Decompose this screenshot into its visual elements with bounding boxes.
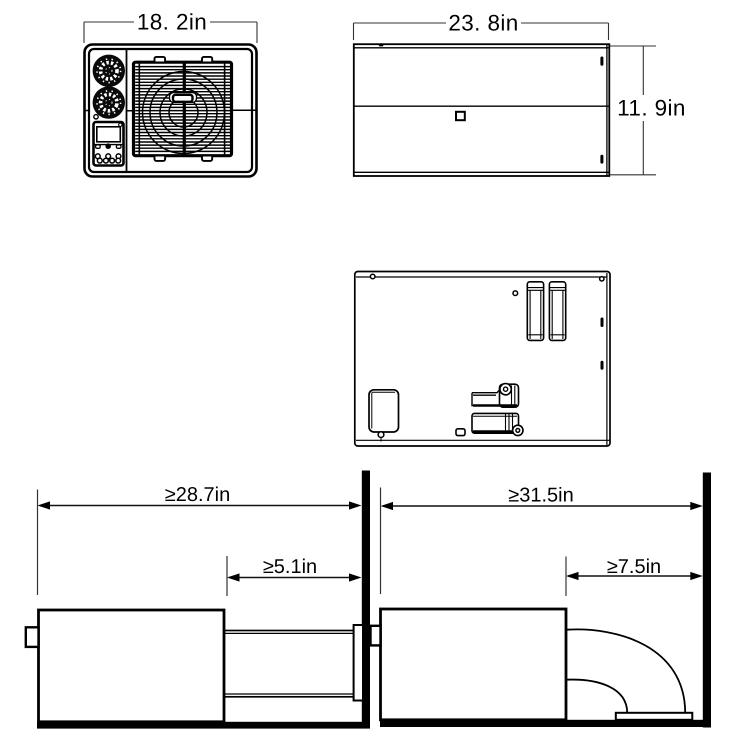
svg-text:11. 9in: 11. 9in xyxy=(617,95,686,120)
svg-text:≥31.5in: ≥31.5in xyxy=(508,484,573,506)
svg-text:18. 2in: 18. 2in xyxy=(137,9,207,34)
svg-text:≥5.1in: ≥5.1in xyxy=(263,556,317,578)
svg-text:≥7.5in: ≥7.5in xyxy=(607,556,661,578)
svg-text:≥28.7in: ≥28.7in xyxy=(165,484,230,506)
svg-text:23. 8in: 23. 8in xyxy=(448,10,518,35)
